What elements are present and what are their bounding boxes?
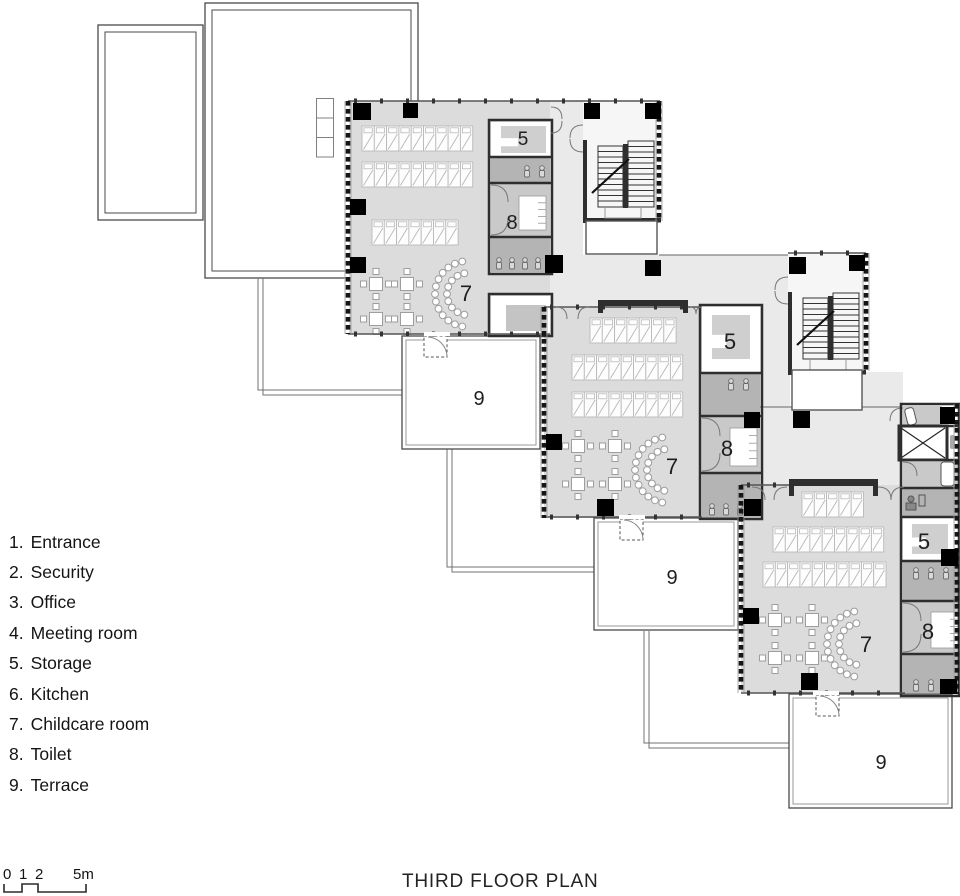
- scale-tick-2: 2: [35, 866, 43, 883]
- legend-number: 7.: [9, 714, 24, 735]
- column: [584, 103, 600, 119]
- shelf-unit: [773, 527, 884, 552]
- accessible-wc-fixtures: [730, 428, 757, 466]
- legend-label: Security: [31, 562, 94, 583]
- column: [645, 260, 661, 276]
- legend-label: Office: [31, 592, 76, 613]
- toilet-fixture-icon: [944, 568, 949, 579]
- column: [597, 499, 614, 516]
- shelf-unit: [372, 220, 458, 245]
- terrace-number: 9: [473, 388, 484, 410]
- toilet-fixture-icon: [523, 258, 528, 269]
- legend-item-toilet: 8.Toilet: [9, 740, 149, 770]
- column: [789, 257, 806, 274]
- childcare-room-number: 7: [666, 454, 678, 479]
- shelf-unit: [572, 355, 683, 380]
- legend: 1.Entrance 2.Security 3.Office 4.Meeting…: [9, 527, 149, 801]
- legend-number: 9.: [9, 775, 24, 796]
- terrace-number: 9: [875, 752, 886, 774]
- legend-item-kitchen: 6.Kitchen: [9, 679, 149, 709]
- column: [940, 407, 955, 424]
- toilet-fixture-icon: [710, 504, 715, 515]
- toilet-fixture-icon: [724, 504, 729, 515]
- shelf-unit: [590, 318, 676, 343]
- scale-tick-1: 1: [19, 866, 27, 883]
- childcare-room-number: 7: [860, 632, 872, 657]
- shelf-unit: [362, 126, 473, 151]
- accessible-wc-fixtures: [519, 196, 546, 230]
- column: [350, 257, 366, 273]
- legend-number: 4.: [9, 623, 24, 644]
- toilet-fixture-icon: [929, 568, 934, 579]
- legend-number: 2.: [9, 562, 24, 583]
- column: [353, 103, 371, 120]
- toilet-fixture-icon: [525, 166, 530, 177]
- legend-label: Entrance: [31, 532, 101, 553]
- column: [940, 679, 957, 694]
- column: [545, 255, 563, 273]
- legend-number: 8.: [9, 744, 24, 765]
- legend-item-childcare-room: 7.Childcare room: [9, 709, 149, 739]
- floor-plan-page: { "title": "THIRD FLOOR PLAN", "legend":…: [0, 0, 960, 896]
- legend-item-office: 3.Office: [9, 588, 149, 618]
- toilet-room-number: 8: [922, 619, 934, 644]
- toilet-room-number: 8: [721, 436, 733, 461]
- storage-room-number: 5: [724, 329, 736, 354]
- column: [941, 549, 958, 566]
- legend-item-storage: 5.Storage: [9, 649, 149, 679]
- scale-tick-0: 0: [3, 866, 11, 883]
- toilet-fixture-icon: [929, 680, 934, 691]
- toilet-fixture-icon: [914, 568, 919, 579]
- scale-tick-5m: 5m: [73, 866, 94, 883]
- legend-item-entrance: 1.Entrance: [9, 527, 149, 557]
- legend-label: Terrace: [31, 775, 89, 796]
- drawing-title: THIRD FLOOR PLAN: [402, 871, 599, 893]
- legend-label: Meeting room: [31, 623, 138, 644]
- column: [645, 103, 661, 119]
- toilet-fixture-icon: [914, 680, 919, 691]
- toilet-fixture-icon: [729, 379, 734, 390]
- legend-item-terrace: 9.Terrace: [9, 770, 149, 800]
- terrace: 9: [594, 518, 738, 630]
- column: [403, 103, 418, 118]
- shelf-unit: [572, 392, 683, 417]
- column: [744, 412, 760, 428]
- toilet-room-number: 8: [506, 212, 517, 234]
- legend-label: Childcare room: [31, 714, 150, 735]
- legend-label: Storage: [31, 653, 92, 674]
- scale-bar: 0 1 2 5m: [2, 866, 142, 896]
- toilet-fixture-icon: [744, 379, 749, 390]
- legend-number: 5.: [9, 653, 24, 674]
- column: [793, 411, 810, 428]
- roof-terrace-small: [98, 25, 203, 220]
- legend-number: 3.: [9, 592, 24, 613]
- toilet-fixture-icon: [510, 258, 515, 269]
- legend-label: Toilet: [31, 744, 72, 765]
- legend-item-security: 2.Security: [9, 557, 149, 587]
- legend-item-meeting-room: 4.Meeting room: [9, 618, 149, 648]
- legend-label: Kitchen: [31, 684, 89, 705]
- shelf-unit: [362, 162, 473, 187]
- toilet-fixture-icon: [536, 258, 541, 269]
- column: [801, 673, 818, 690]
- terrace-door-step: [620, 519, 643, 540]
- childcare-room-number: 7: [460, 281, 472, 306]
- terrace-door-step: [424, 336, 447, 357]
- column: [546, 434, 562, 450]
- shelf-unit: [802, 492, 864, 517]
- plan-drawing: 999777585858: [345, 99, 960, 809]
- scale-bar-profile: [2, 882, 132, 896]
- column: [743, 608, 759, 624]
- terrace-door-step: [816, 695, 839, 716]
- terrace: 9: [789, 694, 952, 808]
- column: [350, 199, 366, 215]
- storage-room-number: 5: [518, 129, 529, 150]
- storage-room-number: 5: [918, 529, 930, 554]
- terrace-number: 9: [666, 567, 677, 589]
- column: [849, 255, 865, 271]
- skylight-squares: [317, 99, 334, 158]
- toilet-fixture-icon: [497, 258, 502, 269]
- toilet-fixture-icon: [540, 166, 545, 177]
- legend-number: 1.: [9, 532, 24, 553]
- column: [744, 499, 761, 516]
- legend-number: 6.: [9, 684, 24, 705]
- terrace: 9: [402, 336, 540, 449]
- shelf-unit: [763, 562, 886, 587]
